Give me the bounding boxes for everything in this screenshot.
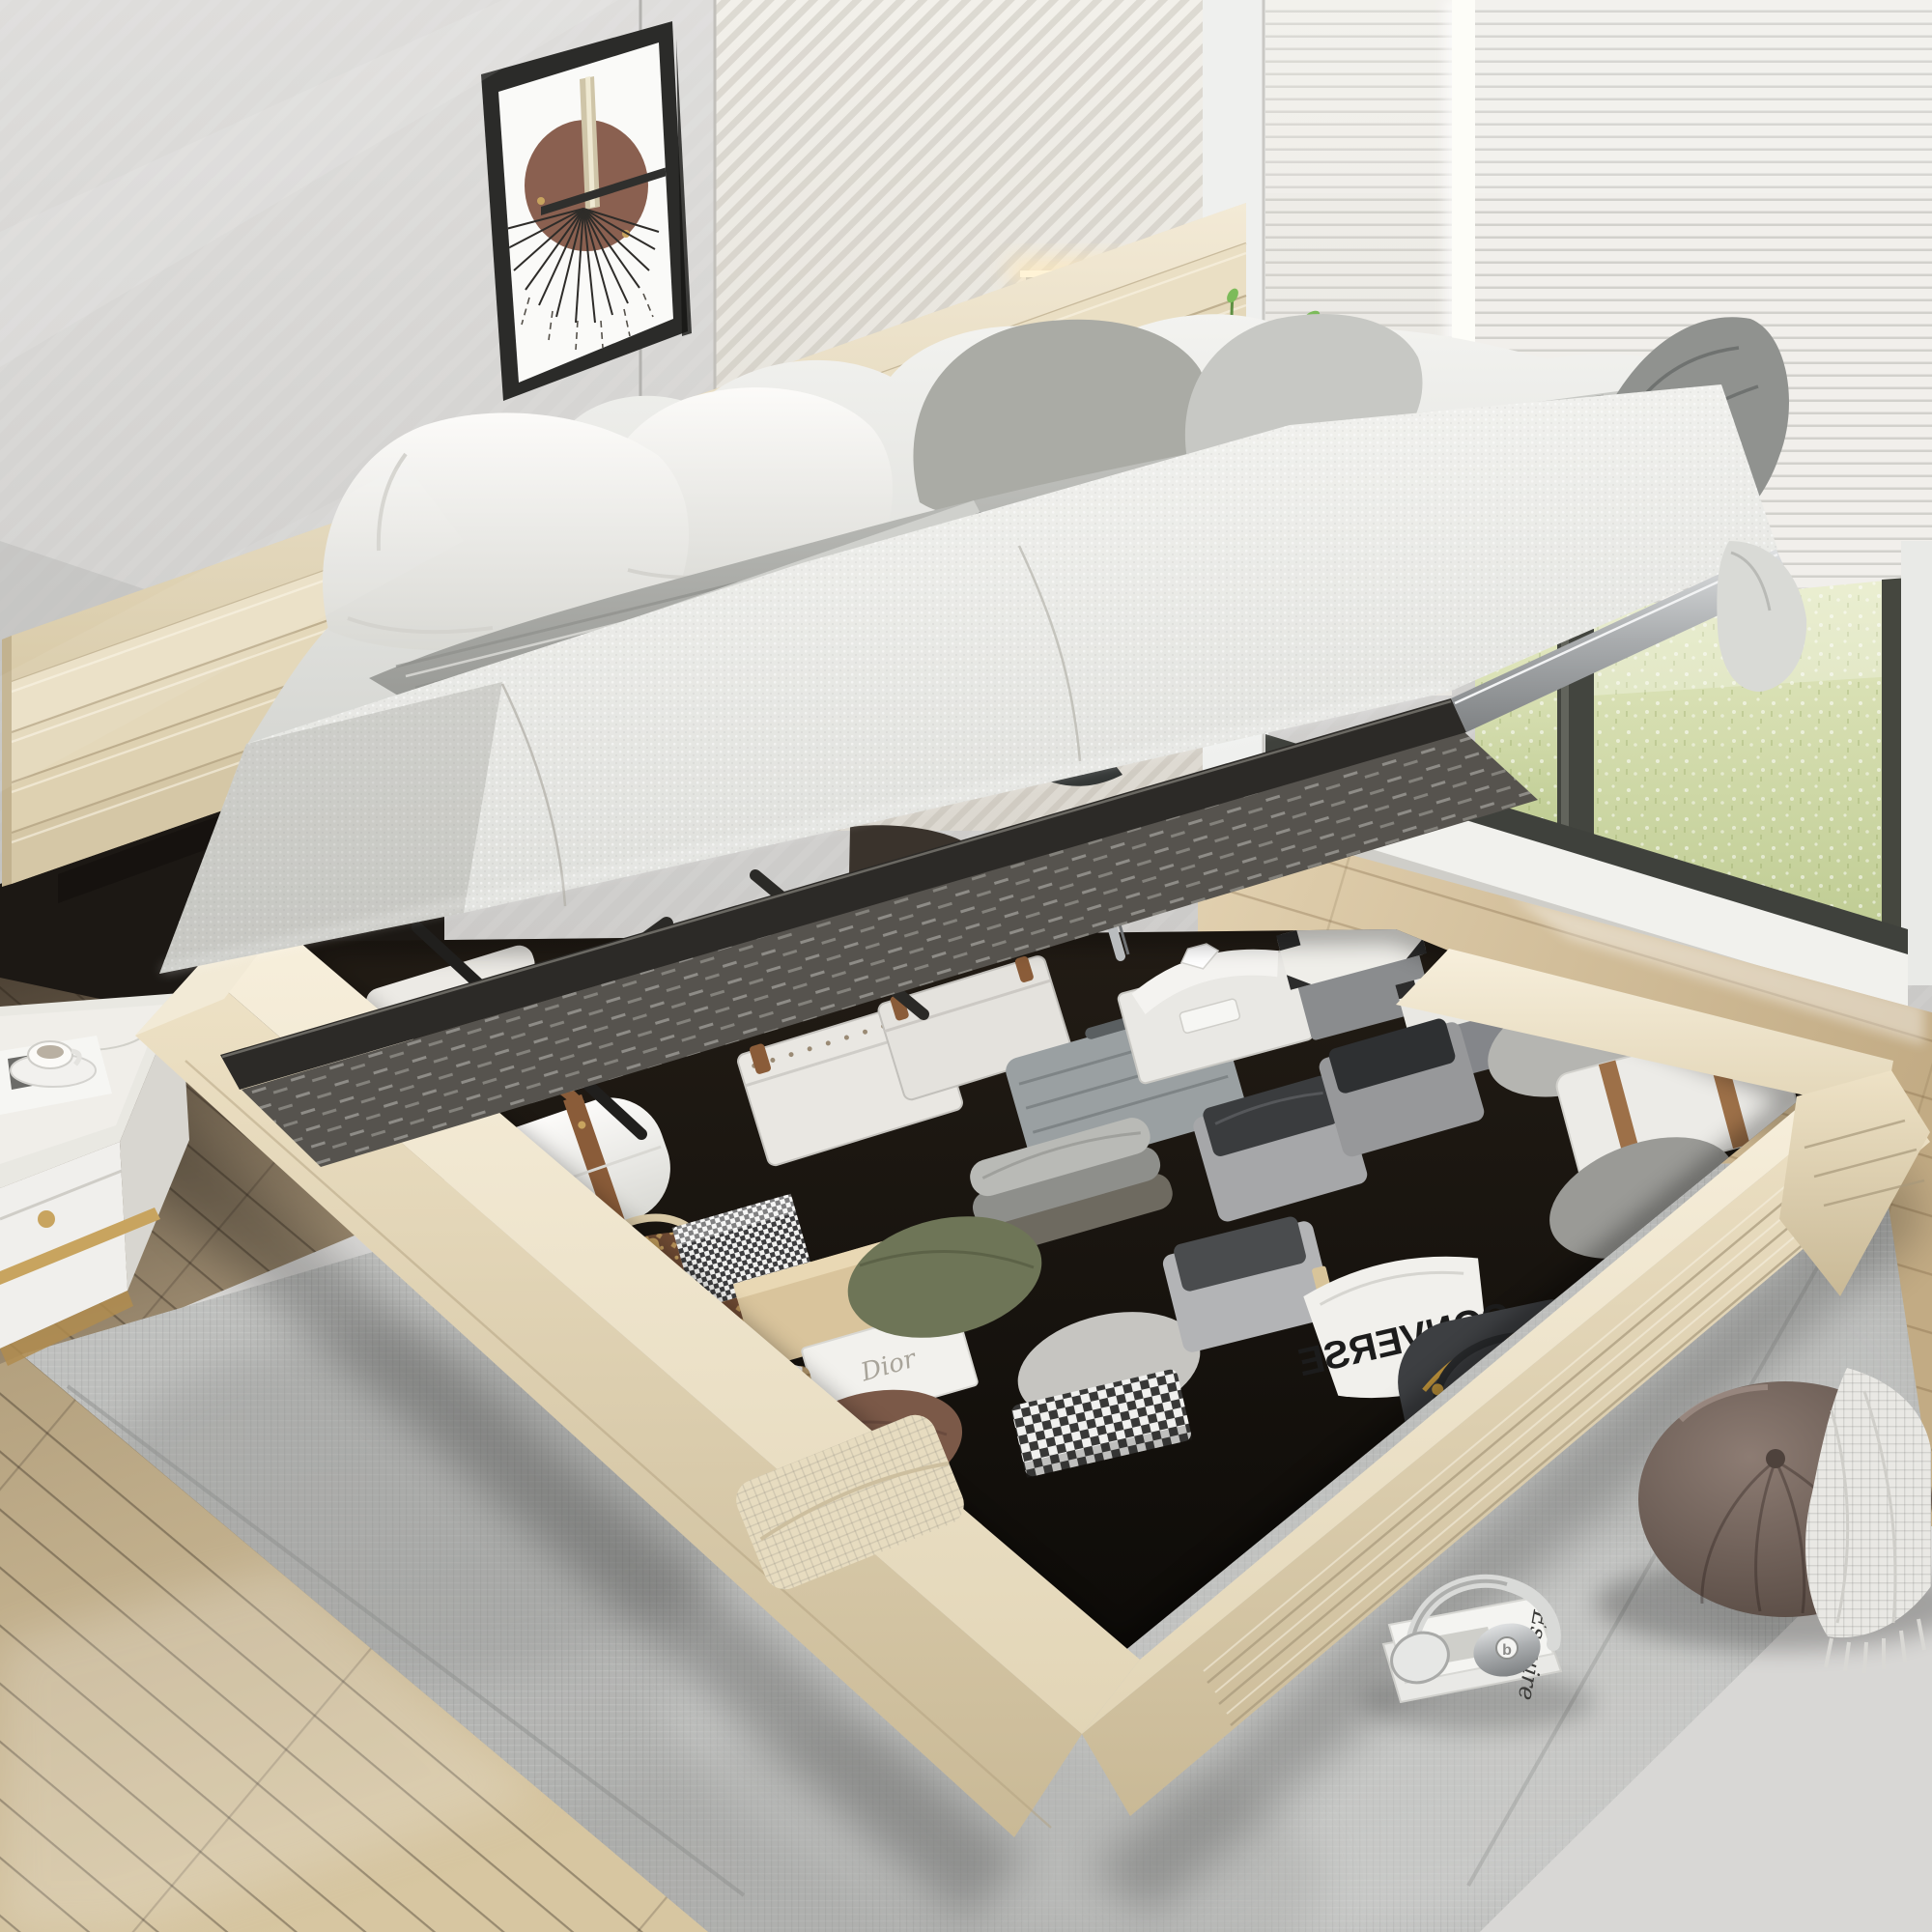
headboard-left-edge xyxy=(2,636,12,887)
pouf-button xyxy=(1766,1449,1785,1468)
window-right-column xyxy=(1901,541,1932,985)
headphones-logo: b xyxy=(1502,1642,1512,1659)
scene-canvas: Dior CONVERSE xyxy=(0,0,1932,1932)
drawer-knob xyxy=(38,1210,55,1228)
product-photo-bedroom-scene: Dior CONVERSE xyxy=(0,0,1932,1932)
